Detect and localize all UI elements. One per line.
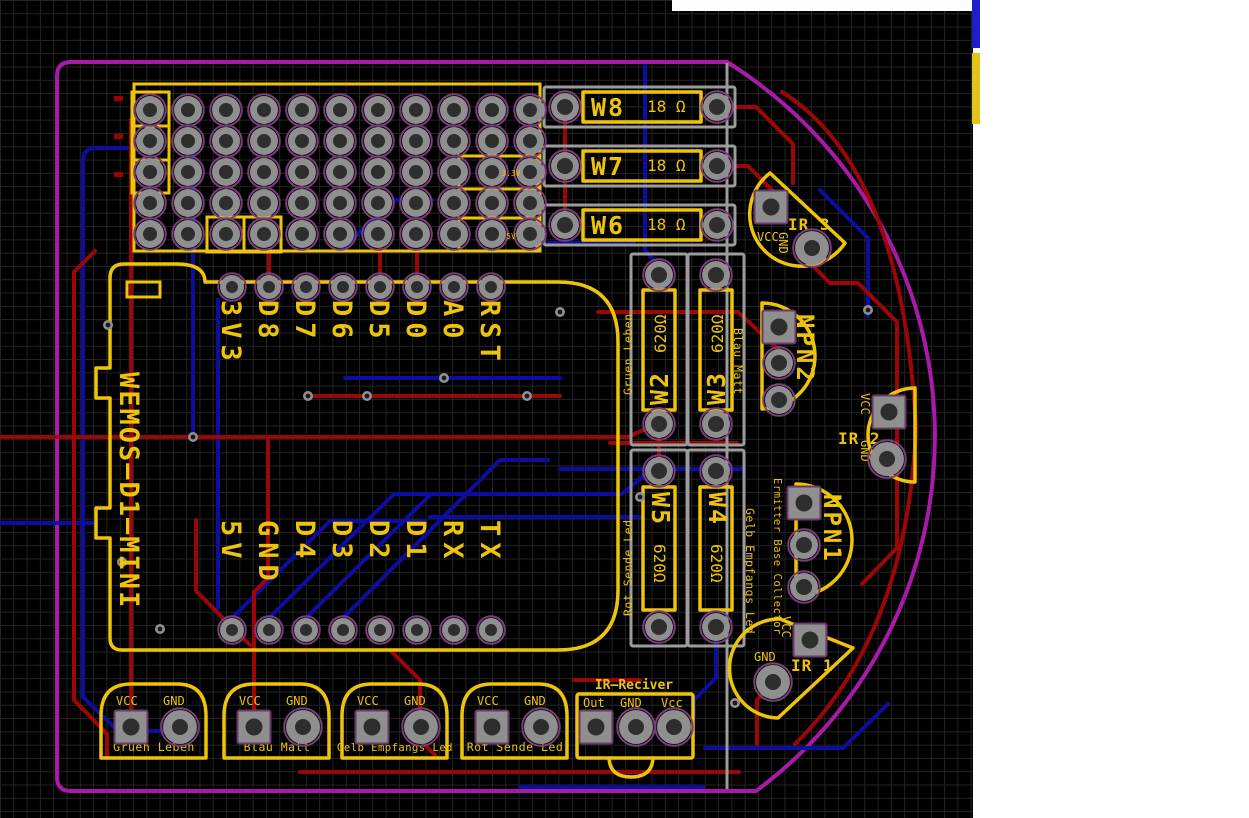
pad-square[interactable]: [794, 624, 827, 657]
pad-round[interactable]: [248, 94, 280, 126]
pad-label-vcc: VCC: [357, 694, 379, 708]
pad-round[interactable]: [514, 94, 546, 126]
net-label-blau-matt: Blau Matt: [731, 328, 745, 395]
via[interactable]: [439, 373, 449, 383]
pad-label-gnd: GND: [524, 694, 546, 708]
pad-round[interactable]: [700, 259, 732, 291]
pad-round[interactable]: [476, 187, 508, 219]
net-label-mark: [114, 172, 123, 177]
net-label-gelb-empfangs: Gelb Empfangs Led: [743, 508, 757, 634]
wemos-name: WEMOS—D1—MINI: [113, 372, 144, 609]
pin-label: D0: [400, 300, 431, 345]
pad-round[interactable]: [522, 708, 560, 746]
net-label-mark: [114, 134, 123, 139]
resistor-ref: W3: [702, 371, 731, 405]
pad-label-gnd: GND: [754, 650, 776, 664]
pad-round[interactable]: [438, 156, 470, 188]
pad-square[interactable]: [115, 711, 148, 744]
pad-round[interactable]: [400, 94, 432, 126]
pad-square[interactable]: [755, 191, 788, 224]
pad-round[interactable]: [362, 94, 394, 126]
resistor-ref: W2: [645, 371, 674, 405]
pad-round[interactable]: [218, 273, 246, 301]
pad-square[interactable]: [238, 711, 271, 744]
pad-label-gnd: GND: [286, 694, 308, 708]
pad-round[interactable]: [286, 187, 318, 219]
pad-round[interactable]: [400, 218, 432, 250]
pad-round[interactable]: [292, 616, 320, 644]
pad-round[interactable]: [324, 125, 356, 157]
resistor-w8[interactable]: W8 18 Ω: [583, 92, 701, 122]
pad-label-vcc: VCC: [239, 694, 261, 708]
pad-round[interactable]: [643, 408, 675, 440]
pad-round[interactable]: [701, 150, 733, 182]
background-panel: [973, 0, 1249, 818]
pin-label: 5V: [215, 520, 246, 565]
pad-square[interactable]: [788, 487, 821, 520]
pad-round[interactable]: [788, 529, 820, 561]
pad-round[interactable]: [255, 616, 283, 644]
pad-round[interactable]: [172, 187, 204, 219]
pad-round[interactable]: [366, 273, 394, 301]
via[interactable]: [730, 698, 740, 708]
pad-square[interactable]: [873, 396, 906, 429]
resistor-w2[interactable]: W2 620Ω: [643, 290, 675, 410]
pad-round[interactable]: [440, 273, 468, 301]
resistor-value: 18 Ω: [647, 156, 686, 175]
via[interactable]: [155, 624, 165, 634]
pad-round[interactable]: [701, 91, 733, 123]
transistor-ref: NPN1: [818, 494, 846, 564]
pad-round[interactable]: [700, 455, 732, 487]
pad-round[interactable]: [248, 187, 280, 219]
window-edge-blue-bar[interactable]: [972, 0, 980, 48]
pad-round[interactable]: [868, 440, 906, 478]
pad-round[interactable]: [400, 187, 432, 219]
net-label-mark: [114, 96, 123, 101]
pin-label: D1: [400, 520, 431, 565]
resistor-value: 620Ω: [650, 544, 669, 583]
pad-round[interactable]: [362, 156, 394, 188]
resistor-w6[interactable]: W6 18 Ω: [583, 210, 701, 240]
connector-name: IR—Reciver: [595, 678, 673, 693]
pad-round[interactable]: [284, 708, 322, 746]
pad-round[interactable]: [210, 125, 242, 157]
pad-round[interactable]: [763, 347, 795, 379]
pad-round[interactable]: [161, 708, 199, 746]
pin-label: D5: [363, 300, 394, 345]
pad-round[interactable]: [643, 455, 675, 487]
overlapping-window-strip: [672, 0, 973, 11]
pad-round[interactable]: [402, 708, 440, 746]
pad-label-vcc: VCC: [858, 393, 872, 415]
pad-round[interactable]: [172, 94, 204, 126]
pcb-editor-window: W8 18 Ω W7 18 Ω W6 18 Ω W2 620Ω: [0, 0, 1249, 818]
via[interactable]: [555, 307, 565, 317]
pad-round[interactable]: [248, 218, 280, 250]
pad-round[interactable]: [476, 125, 508, 157]
pad-label-vcc: VCC: [477, 694, 499, 708]
pad-round[interactable]: [514, 218, 546, 250]
pad-round[interactable]: [549, 150, 581, 182]
net-label-rot-sende: Rot Sende Led: [621, 519, 635, 616]
resistor-ref: W7: [591, 152, 625, 181]
pad-label-vcc: VCC: [116, 694, 138, 708]
resistor-ref: W4: [703, 492, 732, 526]
pad-round[interactable]: [754, 663, 792, 701]
pin-label: D8: [252, 300, 283, 345]
pad-round[interactable]: [172, 156, 204, 188]
resistor-w7[interactable]: W7 18 Ω: [583, 151, 701, 181]
pad-label-gnd: GND: [404, 694, 426, 708]
resistor-value: 620Ω: [708, 314, 727, 353]
pad-round[interactable]: [366, 616, 394, 644]
pad-round[interactable]: [549, 91, 581, 123]
pad-square[interactable]: [763, 311, 796, 344]
pad-round[interactable]: [643, 259, 675, 291]
pad-round[interactable]: [210, 218, 242, 250]
via[interactable]: [103, 320, 113, 330]
pad-round[interactable]: [134, 156, 166, 188]
pin-label: D3: [326, 520, 357, 565]
pad-round[interactable]: [438, 125, 470, 157]
resistor-value: 18 Ω: [647, 97, 686, 116]
pad-round[interactable]: [362, 218, 394, 250]
pad-square[interactable]: [580, 711, 613, 744]
pin-label: TX: [474, 520, 505, 565]
pad-round[interactable]: [324, 94, 356, 126]
pin-label: RST: [474, 300, 505, 367]
net-label-3v3: 3.3V: [501, 169, 520, 178]
pin-label: D2: [363, 520, 394, 565]
pin-label: D4: [289, 520, 320, 565]
resistor-ref: W8: [591, 93, 625, 122]
pad-label-gnd: GND: [163, 694, 185, 708]
pad-square[interactable]: [476, 711, 509, 744]
resistor-ref: W5: [646, 492, 675, 526]
pad-round[interactable]: [403, 616, 431, 644]
resistor-value: 620Ω: [707, 544, 726, 583]
pad-round[interactable]: [438, 94, 470, 126]
ir-ref: IR 1: [791, 656, 834, 675]
pad-label-gnd: GND: [776, 232, 790, 254]
pad-round[interactable]: [210, 187, 242, 219]
pcb-drawing: W8 18 Ω W7 18 Ω W6 18 Ω W2 620Ω: [0, 0, 973, 818]
via[interactable]: [863, 305, 873, 315]
pad-round[interactable]: [255, 273, 283, 301]
pad-round[interactable]: [400, 156, 432, 188]
pad-round[interactable]: [700, 408, 732, 440]
pad-round[interactable]: [617, 708, 655, 746]
pad-round[interactable]: [324, 187, 356, 219]
pin-label: D6: [326, 300, 357, 345]
pad-round[interactable]: [701, 209, 733, 241]
pad-label-out: Out: [583, 696, 605, 710]
pad-round[interactable]: [286, 125, 318, 157]
pad-round[interactable]: [324, 156, 356, 188]
connector-name: Gelb Empfangs Led: [337, 742, 453, 754]
net-label-5v: 5V: [506, 232, 516, 241]
pad-round[interactable]: [134, 187, 166, 219]
pad-round[interactable]: [324, 218, 356, 250]
pin-label: GND: [252, 520, 283, 587]
window-edge-yellow-bar[interactable]: [972, 53, 980, 124]
via[interactable]: [303, 391, 313, 401]
label-transistor-pinout: Ermitter Base Collector: [771, 478, 783, 635]
pin-label: D7: [289, 300, 320, 345]
pad-label-vcc: VCC: [757, 230, 779, 244]
resistor-w5[interactable]: W5 620Ω: [643, 487, 675, 610]
pad-round[interactable]: [438, 218, 470, 250]
pad-round[interactable]: [655, 708, 693, 746]
pad-round[interactable]: [286, 156, 318, 188]
net-label-gruen-leben: Gruen Leben: [621, 313, 635, 395]
pin-label: RX: [437, 520, 468, 565]
pad-round[interactable]: [248, 125, 280, 157]
pad-round[interactable]: [218, 616, 246, 644]
pad-round[interactable]: [514, 187, 546, 219]
pad-round[interactable]: [400, 125, 432, 157]
pad-round[interactable]: [549, 209, 581, 241]
pin-label: A0: [437, 300, 468, 345]
pad-round[interactable]: [476, 94, 508, 126]
via[interactable]: [635, 492, 645, 502]
resistor-ref: W6: [591, 211, 625, 240]
pin-label: 3V3: [215, 300, 246, 367]
pad-round[interactable]: [362, 125, 394, 157]
pad-round[interactable]: [286, 218, 318, 250]
pad-round[interactable]: [788, 571, 820, 603]
resistor-value: 620Ω: [651, 314, 670, 353]
pad-round[interactable]: [134, 218, 166, 250]
pad-round[interactable]: [292, 273, 320, 301]
pad-round[interactable]: [477, 616, 505, 644]
pad-square[interactable]: [356, 711, 389, 744]
pad-round[interactable]: [210, 94, 242, 126]
pad-round[interactable]: [793, 229, 831, 267]
pad-round[interactable]: [403, 273, 431, 301]
ir-ref: IR 3: [788, 215, 831, 234]
pad-round[interactable]: [440, 616, 468, 644]
pcb-canvas[interactable]: W8 18 Ω W7 18 Ω W6 18 Ω W2 620Ω: [0, 0, 973, 818]
wemos-pin-labels: 3V3 D8 D7 D6 D5 D0 A0 RST 5V GND D4 D3 D…: [113, 300, 505, 609]
pad-round[interactable]: [476, 218, 508, 250]
via[interactable]: [188, 432, 198, 442]
pad-round[interactable]: [134, 94, 166, 126]
resistor-value: 18 Ω: [647, 215, 686, 234]
pad-round[interactable]: [514, 125, 546, 157]
pad-round[interactable]: [134, 125, 166, 157]
pad-label-vcc: VCC: [779, 616, 793, 638]
pad-round[interactable]: [286, 94, 318, 126]
pad-round[interactable]: [248, 156, 280, 188]
pad-round[interactable]: [477, 273, 505, 301]
pad-round[interactable]: [172, 125, 204, 157]
ir-sensor-1[interactable]: VCC GND IR 1: [729, 616, 853, 718]
via[interactable]: [362, 391, 372, 401]
pad-round[interactable]: [763, 384, 795, 416]
pad-round[interactable]: [329, 273, 357, 301]
pad-round[interactable]: [329, 616, 357, 644]
via[interactable]: [522, 391, 532, 401]
pad-round[interactable]: [172, 218, 204, 250]
pad-round[interactable]: [643, 611, 675, 643]
pad-round[interactable]: [362, 187, 394, 219]
pad-round[interactable]: [700, 611, 732, 643]
pad-round[interactable]: [210, 156, 242, 188]
pad-round[interactable]: [438, 187, 470, 219]
